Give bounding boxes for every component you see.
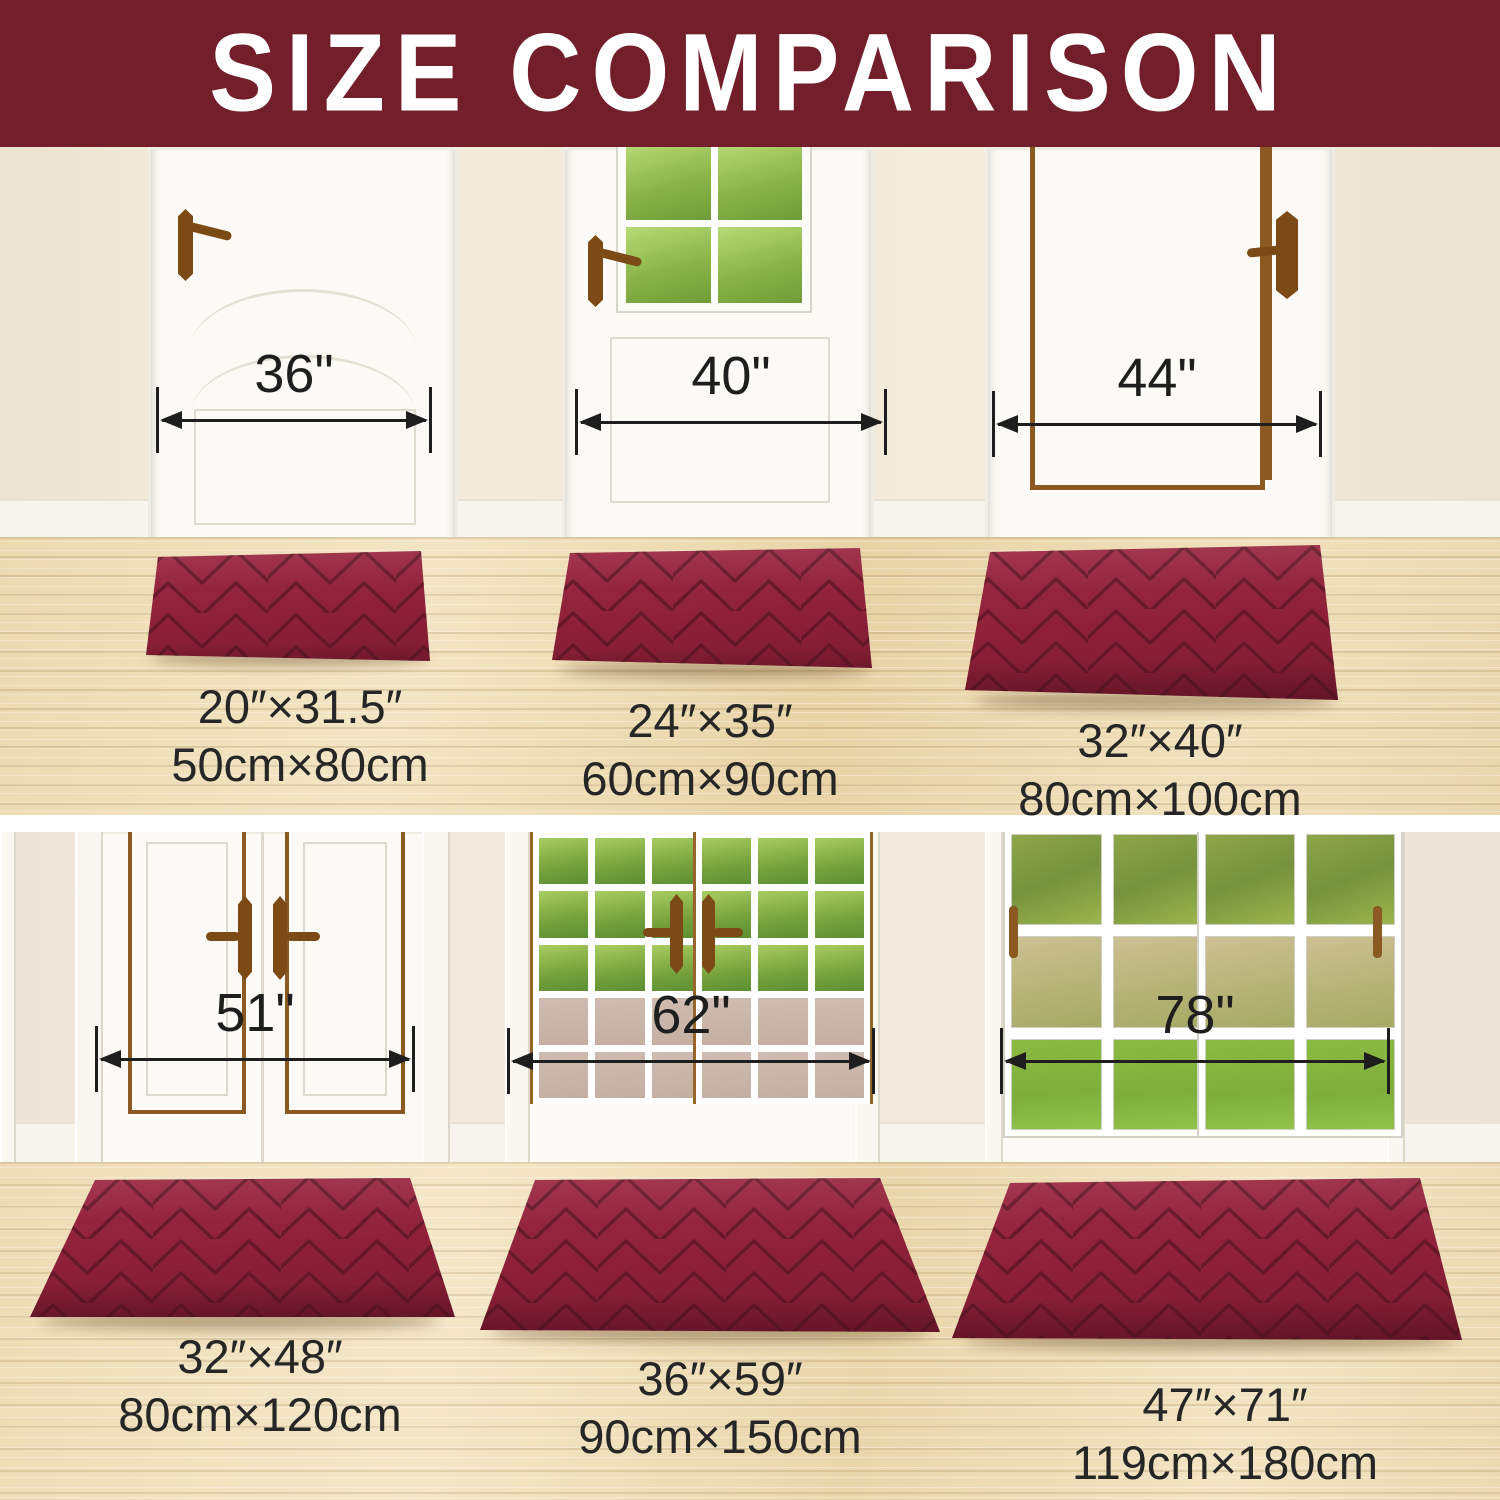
arrow-left-icon (996, 415, 1018, 433)
door-handle (713, 928, 743, 937)
measurement-door-36in: 36" (156, 335, 432, 465)
measure-tick (156, 387, 159, 453)
mat-size-label: 32″×40″ 80cm×100cm (980, 712, 1340, 828)
mat-size-inches: 32″×40″ (980, 712, 1340, 770)
door-handle (702, 894, 715, 974)
arrow-right-icon (406, 411, 428, 429)
mat-size-metric: 80cm×120cm (80, 1386, 440, 1444)
measurement-value: 51" (95, 982, 415, 1044)
arrow-left-icon (1004, 1052, 1026, 1070)
measurement-value: 36" (156, 343, 432, 405)
window-pane (1205, 834, 1295, 925)
mat-size-metric: 90cm×150cm (540, 1408, 900, 1466)
measure-line (162, 419, 426, 422)
measure-tick (429, 387, 432, 453)
doormat-47x71 (945, 1175, 1465, 1345)
measurement-value: 78" (1000, 984, 1390, 1046)
door-jamb (422, 832, 450, 1165)
arrow-right-icon (1364, 1052, 1386, 1070)
window-pane (758, 891, 807, 937)
measure-tick (1000, 1028, 1003, 1094)
mat-size-inches: 24″×35″ (540, 692, 880, 750)
door-handle (588, 235, 603, 307)
arrow-right-icon (1296, 415, 1318, 433)
arrow-left-icon (160, 411, 182, 429)
measure-tick (412, 1026, 415, 1092)
measure-line (1006, 1060, 1384, 1063)
window-pane (702, 838, 751, 884)
measure-tick (992, 391, 995, 457)
window-pane (539, 838, 588, 884)
measure-tick (1319, 391, 1322, 457)
doormat-32x48 (25, 1175, 460, 1325)
mat-size-inches: 32″×48″ (80, 1328, 440, 1386)
mat-size-metric: 50cm×80cm (130, 736, 470, 794)
page-title: SIZE COMPARISON (209, 10, 1291, 137)
measure-tick (575, 389, 578, 455)
measure-tick (884, 389, 887, 455)
window-pane (718, 227, 803, 304)
mat-size-inches: 36″×59″ (540, 1350, 900, 1408)
window-pane (626, 147, 711, 220)
mat-size-metric: 60cm×90cm (540, 750, 880, 808)
mat-size-inches: 47″×71″ (1035, 1376, 1415, 1434)
measure-line (513, 1060, 869, 1063)
window-pane (815, 838, 864, 884)
mat-size-metric: 119cm×180cm (1035, 1434, 1415, 1492)
door-handle (1276, 211, 1298, 299)
measure-tick (95, 1026, 98, 1092)
measurement-value: 62" (507, 984, 875, 1046)
measurement-door-40in: 40" (575, 337, 887, 467)
window-pane (595, 891, 644, 937)
door-handle (206, 932, 240, 941)
mat-size-label: 32″×48″ 80cm×120cm (80, 1328, 440, 1444)
window-pane (1011, 834, 1102, 925)
measurement-value: 44" (992, 347, 1322, 409)
doormat-32x40 (960, 545, 1340, 705)
arrow-left-icon (511, 1052, 533, 1070)
door-handle (188, 222, 233, 241)
arrow-right-icon (861, 413, 883, 431)
doormat-36x59 (470, 1175, 945, 1340)
window-pane (1113, 834, 1204, 925)
window-pane (815, 891, 864, 937)
title-banner: SIZE COMPARISON (0, 0, 1500, 147)
door-handle (273, 896, 287, 980)
door-handle (643, 928, 673, 937)
mat-size-label: 36″×59″ 90cm×150cm (540, 1350, 900, 1466)
measurement-door-51in: 51" (95, 974, 415, 1104)
door-window (618, 147, 810, 311)
mat-size-label: 47″×71″ 119cm×180cm (1035, 1376, 1415, 1492)
door-handle (1009, 906, 1018, 958)
measure-line (998, 423, 1316, 426)
measurement-door-44in: 44" (992, 339, 1322, 469)
measure-line (101, 1058, 409, 1061)
measure-tick (507, 1028, 510, 1094)
door-handle (1373, 906, 1382, 958)
door-handle (238, 896, 252, 980)
mat-size-metric: 80cm×100cm (980, 770, 1340, 828)
window-pane (595, 838, 644, 884)
measurement-door-78in: 78" (1000, 976, 1390, 1106)
arrow-right-icon (389, 1050, 411, 1068)
window-pane (718, 147, 803, 220)
measurement-value: 40" (575, 345, 887, 407)
arrow-right-icon (849, 1052, 871, 1070)
measurement-door-62in: 62" (507, 976, 875, 1106)
measure-tick (872, 1028, 875, 1094)
door-handle (286, 932, 320, 941)
door-jamb (0, 832, 16, 1165)
door-handle (670, 894, 683, 974)
mat-size-label: 24″×35″ 60cm×90cm (540, 692, 880, 808)
mat-size-inches: 20″×31.5″ (130, 678, 470, 736)
measure-line (581, 421, 881, 424)
mat-size-label: 20″×31.5″ 50cm×80cm (130, 678, 470, 794)
window-pane (539, 891, 588, 937)
arrow-left-icon (99, 1050, 121, 1068)
window-pane (758, 838, 807, 884)
arrow-left-icon (579, 413, 601, 431)
measure-tick (1387, 1028, 1390, 1094)
door-handle (178, 209, 193, 281)
product-infographic: SIZE COMPARISON (0, 0, 1500, 1500)
